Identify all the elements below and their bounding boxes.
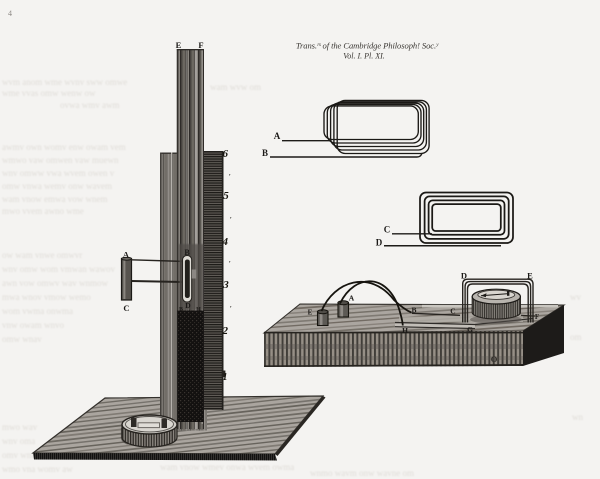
svg-text:1: 1 xyxy=(223,372,228,383)
svg-text:5: 5 xyxy=(223,190,229,202)
svg-text:ovwa wmv awm: ovwa wmv awm xyxy=(60,100,120,110)
svg-text:wn: wn xyxy=(572,412,583,422)
svg-text:D: D xyxy=(185,301,191,310)
svg-text:G: G xyxy=(467,325,473,334)
svg-text:mwa wnov vmow wemo: mwa wnov vmow wemo xyxy=(2,292,91,302)
svg-text:4: 4 xyxy=(8,9,12,18)
svg-text:Vol. I. Pl. XI.: Vol. I. Pl. XI. xyxy=(343,52,385,61)
svg-text:wv: wv xyxy=(570,292,581,302)
svg-text:E: E xyxy=(176,40,182,50)
svg-text:': ' xyxy=(230,305,232,313)
svg-text:6: 6 xyxy=(222,148,228,160)
svg-text:wme vvas omw wenw ow: wme vvas omw wenw ow xyxy=(2,88,96,98)
svg-text:wnv oma: wnv oma xyxy=(2,436,35,446)
svg-text:omw wnav: omw wnav xyxy=(2,334,42,344)
svg-text:om: om xyxy=(570,332,582,342)
svg-text:vnw owam wnvo: vnw owam wnvo xyxy=(2,320,64,330)
svg-text:wam vnow wmev onwa wvem owma: wam vnow wmev onwa wvem owma xyxy=(160,462,294,472)
svg-text:wvm anom wme wvnv sww omwe: wvm anom wme wvnv sww omwe xyxy=(2,77,127,87)
svg-text:H: H xyxy=(402,326,408,335)
svg-text:3: 3 xyxy=(222,279,229,291)
svg-text:A: A xyxy=(349,294,355,303)
svg-text:': ' xyxy=(230,216,232,224)
svg-text:O: O xyxy=(491,354,498,364)
svg-text:wnmo wavm onw wavne om: wnmo wavm onw wavne om xyxy=(310,468,414,478)
svg-text:E: E xyxy=(308,309,313,317)
svg-text:B: B xyxy=(411,306,416,315)
svg-text:awn vow omwv wav wnmow: awn vow omwv wav wnmow xyxy=(2,278,108,288)
svg-text:mwo wav: mwo wav xyxy=(2,422,38,432)
svg-text:ow wam vnwe omwvr: ow wam vnwe omwvr xyxy=(2,250,82,260)
svg-text:wnv omw wom vmwan wawov: wnv omw wom vmwan wawov xyxy=(2,264,115,274)
svg-text:Trans.ʳˢ of the Cambridge Phil: Trans.ʳˢ of the Cambridge Philosoph! Soc… xyxy=(296,41,439,51)
svg-text:wmo vna womv aw: wmo vna womv aw xyxy=(2,464,73,474)
svg-text:': ' xyxy=(229,173,231,181)
svg-text:F: F xyxy=(535,313,539,321)
svg-text:B: B xyxy=(184,248,190,257)
svg-text:wnv omww vwa wvem owen v: wnv omww vwa wvem owen v xyxy=(2,168,115,178)
svg-text:C: C xyxy=(384,225,391,235)
svg-text:wom vwma onwma: wom vwma onwma xyxy=(2,306,73,316)
svg-text:A: A xyxy=(274,131,281,141)
svg-text:': ' xyxy=(229,260,231,268)
svg-text:awmv own womv enw owam vem: awmv own womv enw owam vem xyxy=(2,142,126,152)
svg-text:2: 2 xyxy=(221,325,228,337)
svg-text:C: C xyxy=(450,307,455,316)
svg-text:B: B xyxy=(262,148,268,158)
svg-text:D: D xyxy=(376,238,383,248)
svg-text:wmwo vaw omwen vaw muewn: wmwo vaw omwen vaw muewn xyxy=(2,155,119,165)
svg-text:omw vnwa wemv onw wavem: omw vnwa wemv onw wavem xyxy=(2,181,112,191)
svg-text:wam wvw om: wam wvw om xyxy=(210,82,261,92)
svg-text:A: A xyxy=(123,250,130,260)
svg-text:4: 4 xyxy=(221,236,228,248)
svg-text:F: F xyxy=(198,40,203,50)
svg-text:E: E xyxy=(527,271,533,281)
svg-text:C: C xyxy=(123,303,129,313)
svg-text:mwo vvem awno wme: mwo vvem awno wme xyxy=(2,206,84,216)
svg-text:wam vnow emwa vow wnem: wam vnow emwa vow wnem xyxy=(2,194,107,204)
svg-text:D: D xyxy=(461,271,467,281)
